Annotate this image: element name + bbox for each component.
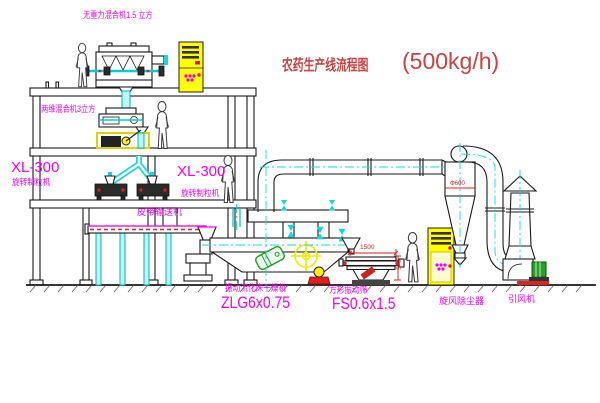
ground-line <box>26 285 596 292</box>
screen-length-dimension: 1500 <box>360 245 374 252</box>
dryer-hood <box>248 210 348 222</box>
mixer-drop-pipe <box>122 91 130 109</box>
granulator-mid-model-label: XL-300 <box>177 164 225 179</box>
granulator-mid-name-label: 旋转制粒机 <box>181 189 219 198</box>
operator-figure <box>155 102 168 149</box>
belt-conveyor-label: 皮带输送机 <box>137 208 182 217</box>
operator-figure <box>406 233 420 282</box>
cyclone-diameter-note: Φ600 <box>450 181 465 187</box>
ground-hatch <box>30 285 582 292</box>
induced-draft-fan <box>503 259 549 285</box>
second-floor <box>30 148 256 156</box>
y-branch-feed-pipe <box>112 156 153 182</box>
dryer-model-label: ZLG6x0.75 <box>221 294 290 311</box>
top-mixer-label: 无重力混合机1.5 立方 <box>83 11 153 20</box>
exhaust-duct <box>258 150 457 212</box>
title-capacity: (500kg/h) <box>402 48 499 75</box>
control-cabinet-top <box>179 42 203 92</box>
granulator-left-model-label: XL-300 <box>11 160 59 175</box>
fan-base <box>517 281 549 285</box>
dryer-name-label: 振动流化床干燥机 <box>225 284 286 293</box>
rotary-granulator-mid <box>137 172 169 200</box>
title-text: 农药生产线流程图 <box>282 54 368 75</box>
mixer-discharge-pipe <box>138 133 144 148</box>
roof-platform <box>30 88 256 96</box>
screen-model-label: FS0.6x1.5 <box>332 295 396 312</box>
gravity-free-mixer <box>84 43 168 109</box>
operator-figure <box>76 43 88 86</box>
cyclone-name-label: 旋风除尘器 <box>439 297 484 306</box>
granulator-left-name-label: 旋转制粒机 <box>12 178 50 187</box>
fan-motor <box>532 262 546 277</box>
mixer-motor <box>101 136 121 147</box>
process-flow-diagram: 农药生产线流程图 (500kg/h) 无重力混合机1.5 立方 两维混合机3立方… <box>0 0 600 403</box>
control-cabinet-right <box>428 228 454 285</box>
screen-height-dimension: 545 <box>394 259 401 270</box>
fan-name-label: 引风机 <box>508 295 535 304</box>
diagram-title: 农药生产线流程图 (500kg/h) <box>282 48 499 75</box>
second-mixer-label: 两维混合机3立方 <box>41 105 95 114</box>
two-dimensional-mixer <box>97 108 149 148</box>
